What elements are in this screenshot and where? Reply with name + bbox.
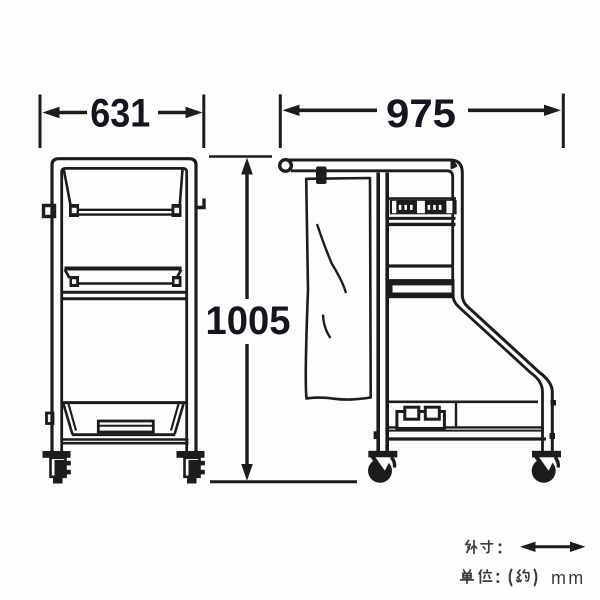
svg-text:1005: 1005 [206,299,291,343]
svg-text:631: 631 [90,92,150,136]
svg-text:975: 975 [386,92,456,136]
svg-text:mm: mm [551,568,585,588]
